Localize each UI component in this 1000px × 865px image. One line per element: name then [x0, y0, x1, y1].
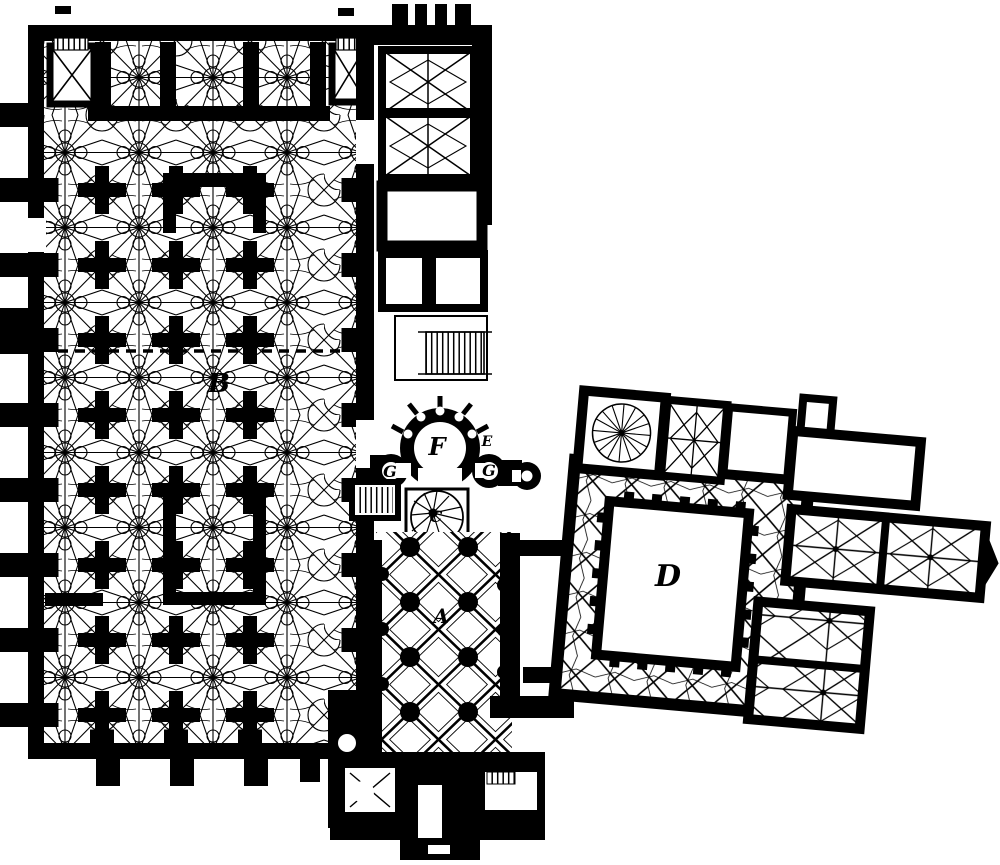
apse-F	[392, 396, 488, 494]
church-hall	[0, 6, 366, 786]
apse-group	[352, 396, 541, 545]
cloister-courtyard	[596, 501, 749, 667]
wing-stair-hall	[395, 316, 492, 380]
cloister-east-wing	[785, 509, 1000, 599]
wing-room-a	[382, 254, 426, 308]
hall-west-door	[28, 218, 46, 252]
cloister-star-room	[661, 400, 727, 481]
wing-room-b	[432, 254, 484, 308]
porch-columns	[392, 4, 471, 26]
cloister-north-room	[723, 407, 793, 478]
floorplan-drawing	[0, 0, 1000, 865]
floorplan-page: B F E G G C A D	[0, 0, 1000, 865]
choir-A	[368, 532, 578, 764]
apse-side-stair	[352, 482, 398, 518]
cloister	[554, 378, 1000, 739]
wing-star-chapel	[378, 50, 478, 178]
wing-vestibule	[382, 186, 482, 246]
cloister-se-rooms	[748, 602, 870, 729]
cloister-spiral-room	[577, 391, 665, 476]
cloister-ne-room	[788, 431, 921, 506]
staircase-hatch	[426, 332, 484, 374]
